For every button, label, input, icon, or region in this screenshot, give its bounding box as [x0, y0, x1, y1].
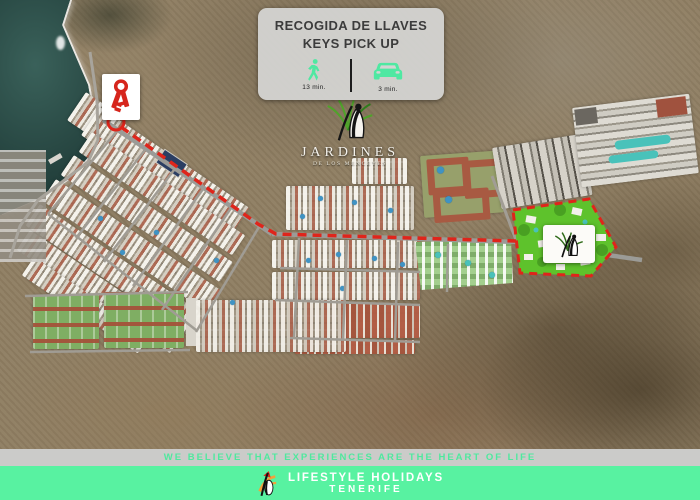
dark-building: [574, 107, 598, 126]
lawn-block: [33, 295, 99, 349]
satellite-map: JARDINES DE LOS MENCEYES RECOGIDA DE LLA…: [0, 0, 700, 449]
terracotta-building: [432, 187, 490, 223]
key-pickup-map-flyer: JARDINES DE LOS MENCEYES RECOGIDA DE LLA…: [0, 0, 700, 500]
hotel-complex: [572, 94, 699, 188]
map-district: [196, 300, 346, 352]
drive-time-column: 3 min.: [366, 58, 410, 93]
pool: [120, 250, 125, 255]
pool: [306, 258, 311, 263]
sign-travel-times: 13 min. 3 min.: [258, 58, 444, 93]
pool: [435, 252, 441, 258]
brand-text: LIFESTYLE HOLIDAYS TENERIFE: [288, 472, 444, 495]
tagline-text: WE BELIEVE THAT EXPERIENCES ARE THE HEAR…: [164, 452, 536, 463]
brand-line2: TENERIFE: [288, 484, 444, 495]
white-strip-building: [186, 298, 196, 346]
tagline-strip: WE BELIEVE THAT EXPERIENCES ARE THE HEAR…: [0, 449, 700, 466]
resort-logo-subtitle: DE LOS MENCEYES: [298, 161, 402, 167]
resort-logo: JARDINES DE LOS MENCEYES: [298, 96, 402, 168]
pool: [98, 216, 103, 221]
terracotta-compound: [420, 150, 504, 217]
pool: [388, 208, 393, 213]
jardines-logo-icon: [324, 96, 376, 142]
walking-person-icon: [306, 58, 323, 82]
pool: [489, 272, 495, 278]
sign-title-es: RECOGIDA DE LLAVES: [258, 17, 444, 35]
footer-brand-bar: LIFESTYLE HOLIDAYS TENERIFE: [0, 466, 700, 500]
drive-time-label: 3 min.: [378, 86, 398, 93]
map-district: [286, 186, 414, 230]
keys-pickup-marker: [102, 74, 140, 120]
sign-title-en: KEYS PICK UP: [258, 35, 444, 53]
lawn-block: [104, 292, 184, 348]
destination-logo-marker: [543, 225, 595, 263]
surf-foam: [56, 36, 65, 50]
pool: [318, 196, 323, 201]
pool: [400, 262, 405, 267]
resort-logo-name: JARDINES: [298, 145, 402, 161]
sign-title: RECOGIDA DE LLAVES KEYS PICK UP: [258, 8, 444, 53]
lifestyle-holidays-logo-icon: [256, 469, 278, 497]
pool-strip: [608, 150, 659, 164]
map-district: [272, 240, 420, 268]
walk-time-label: 13 min.: [302, 84, 325, 91]
pool: [154, 230, 159, 235]
pool: [352, 200, 357, 205]
red-keys-icon: [106, 77, 136, 117]
marina-area: [0, 150, 46, 262]
pool: [340, 286, 345, 291]
sign-divider: [350, 59, 352, 92]
pool: [214, 258, 219, 263]
pool: [372, 256, 377, 261]
walk-time-column: 13 min.: [292, 58, 336, 91]
pool: [230, 300, 235, 305]
green-resort-adjacent: [413, 240, 513, 290]
pool: [465, 260, 471, 266]
car-icon: [373, 60, 403, 84]
map-district: [272, 272, 420, 300]
brand-line1: LIFESTYLE HOLIDAYS: [288, 472, 444, 484]
pool-strip: [614, 134, 671, 150]
pool: [300, 214, 305, 219]
pool: [336, 252, 341, 257]
key-pickup-sign: RECOGIDA DE LLAVES KEYS PICK UP 13 min.: [258, 8, 444, 100]
red-roof-building: [656, 96, 688, 118]
jardines-logo-mini-icon: [553, 230, 585, 258]
